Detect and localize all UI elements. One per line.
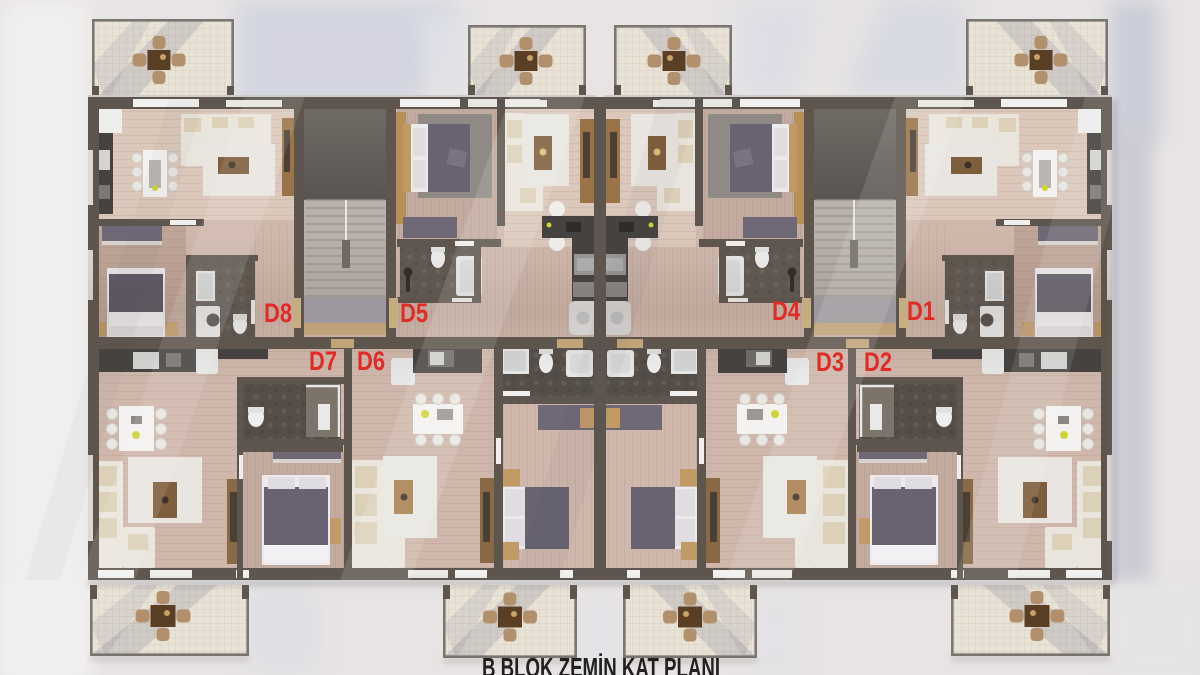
svg-text:D7: D7	[309, 346, 337, 376]
svg-text:D5: D5	[400, 298, 428, 328]
svg-text:D6: D6	[357, 346, 385, 376]
svg-text:D8: D8	[264, 298, 292, 328]
svg-text:B BLOK ZEMİN KAT PLANI: B BLOK ZEMİN KAT PLANI	[482, 652, 720, 675]
svg-text:D1: D1	[907, 296, 935, 326]
svg-text:D4: D4	[772, 296, 800, 326]
svg-text:D2: D2	[864, 347, 892, 377]
svg-text:D3: D3	[816, 347, 844, 377]
